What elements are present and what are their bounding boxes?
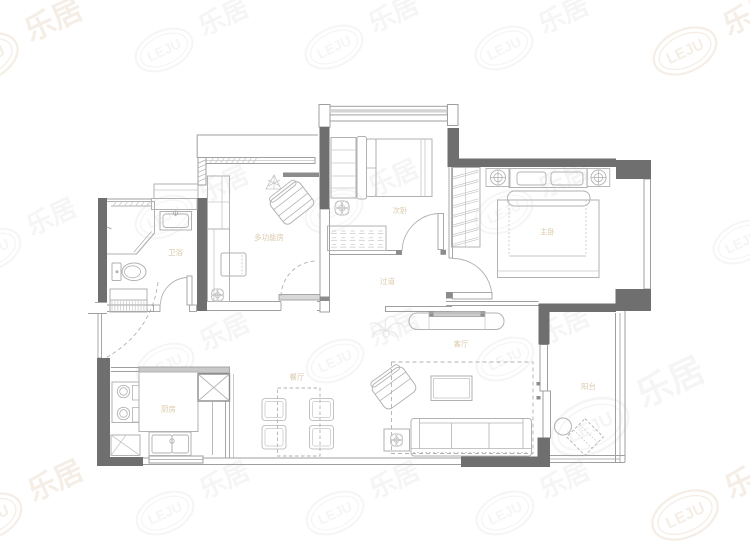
svg-text:厨房: 厨房 [161,404,176,414]
svg-text:餐厅: 餐厅 [290,373,305,382]
svg-text:客厅: 客厅 [454,339,469,349]
svg-text:多功能房: 多功能房 [254,232,284,242]
svg-text:卫浴: 卫浴 [168,247,183,257]
svg-text:次卧: 次卧 [393,205,408,215]
svg-text:主卧: 主卧 [540,227,555,237]
svg-text:阳台: 阳台 [581,381,596,391]
svg-text:过道: 过道 [380,276,395,286]
